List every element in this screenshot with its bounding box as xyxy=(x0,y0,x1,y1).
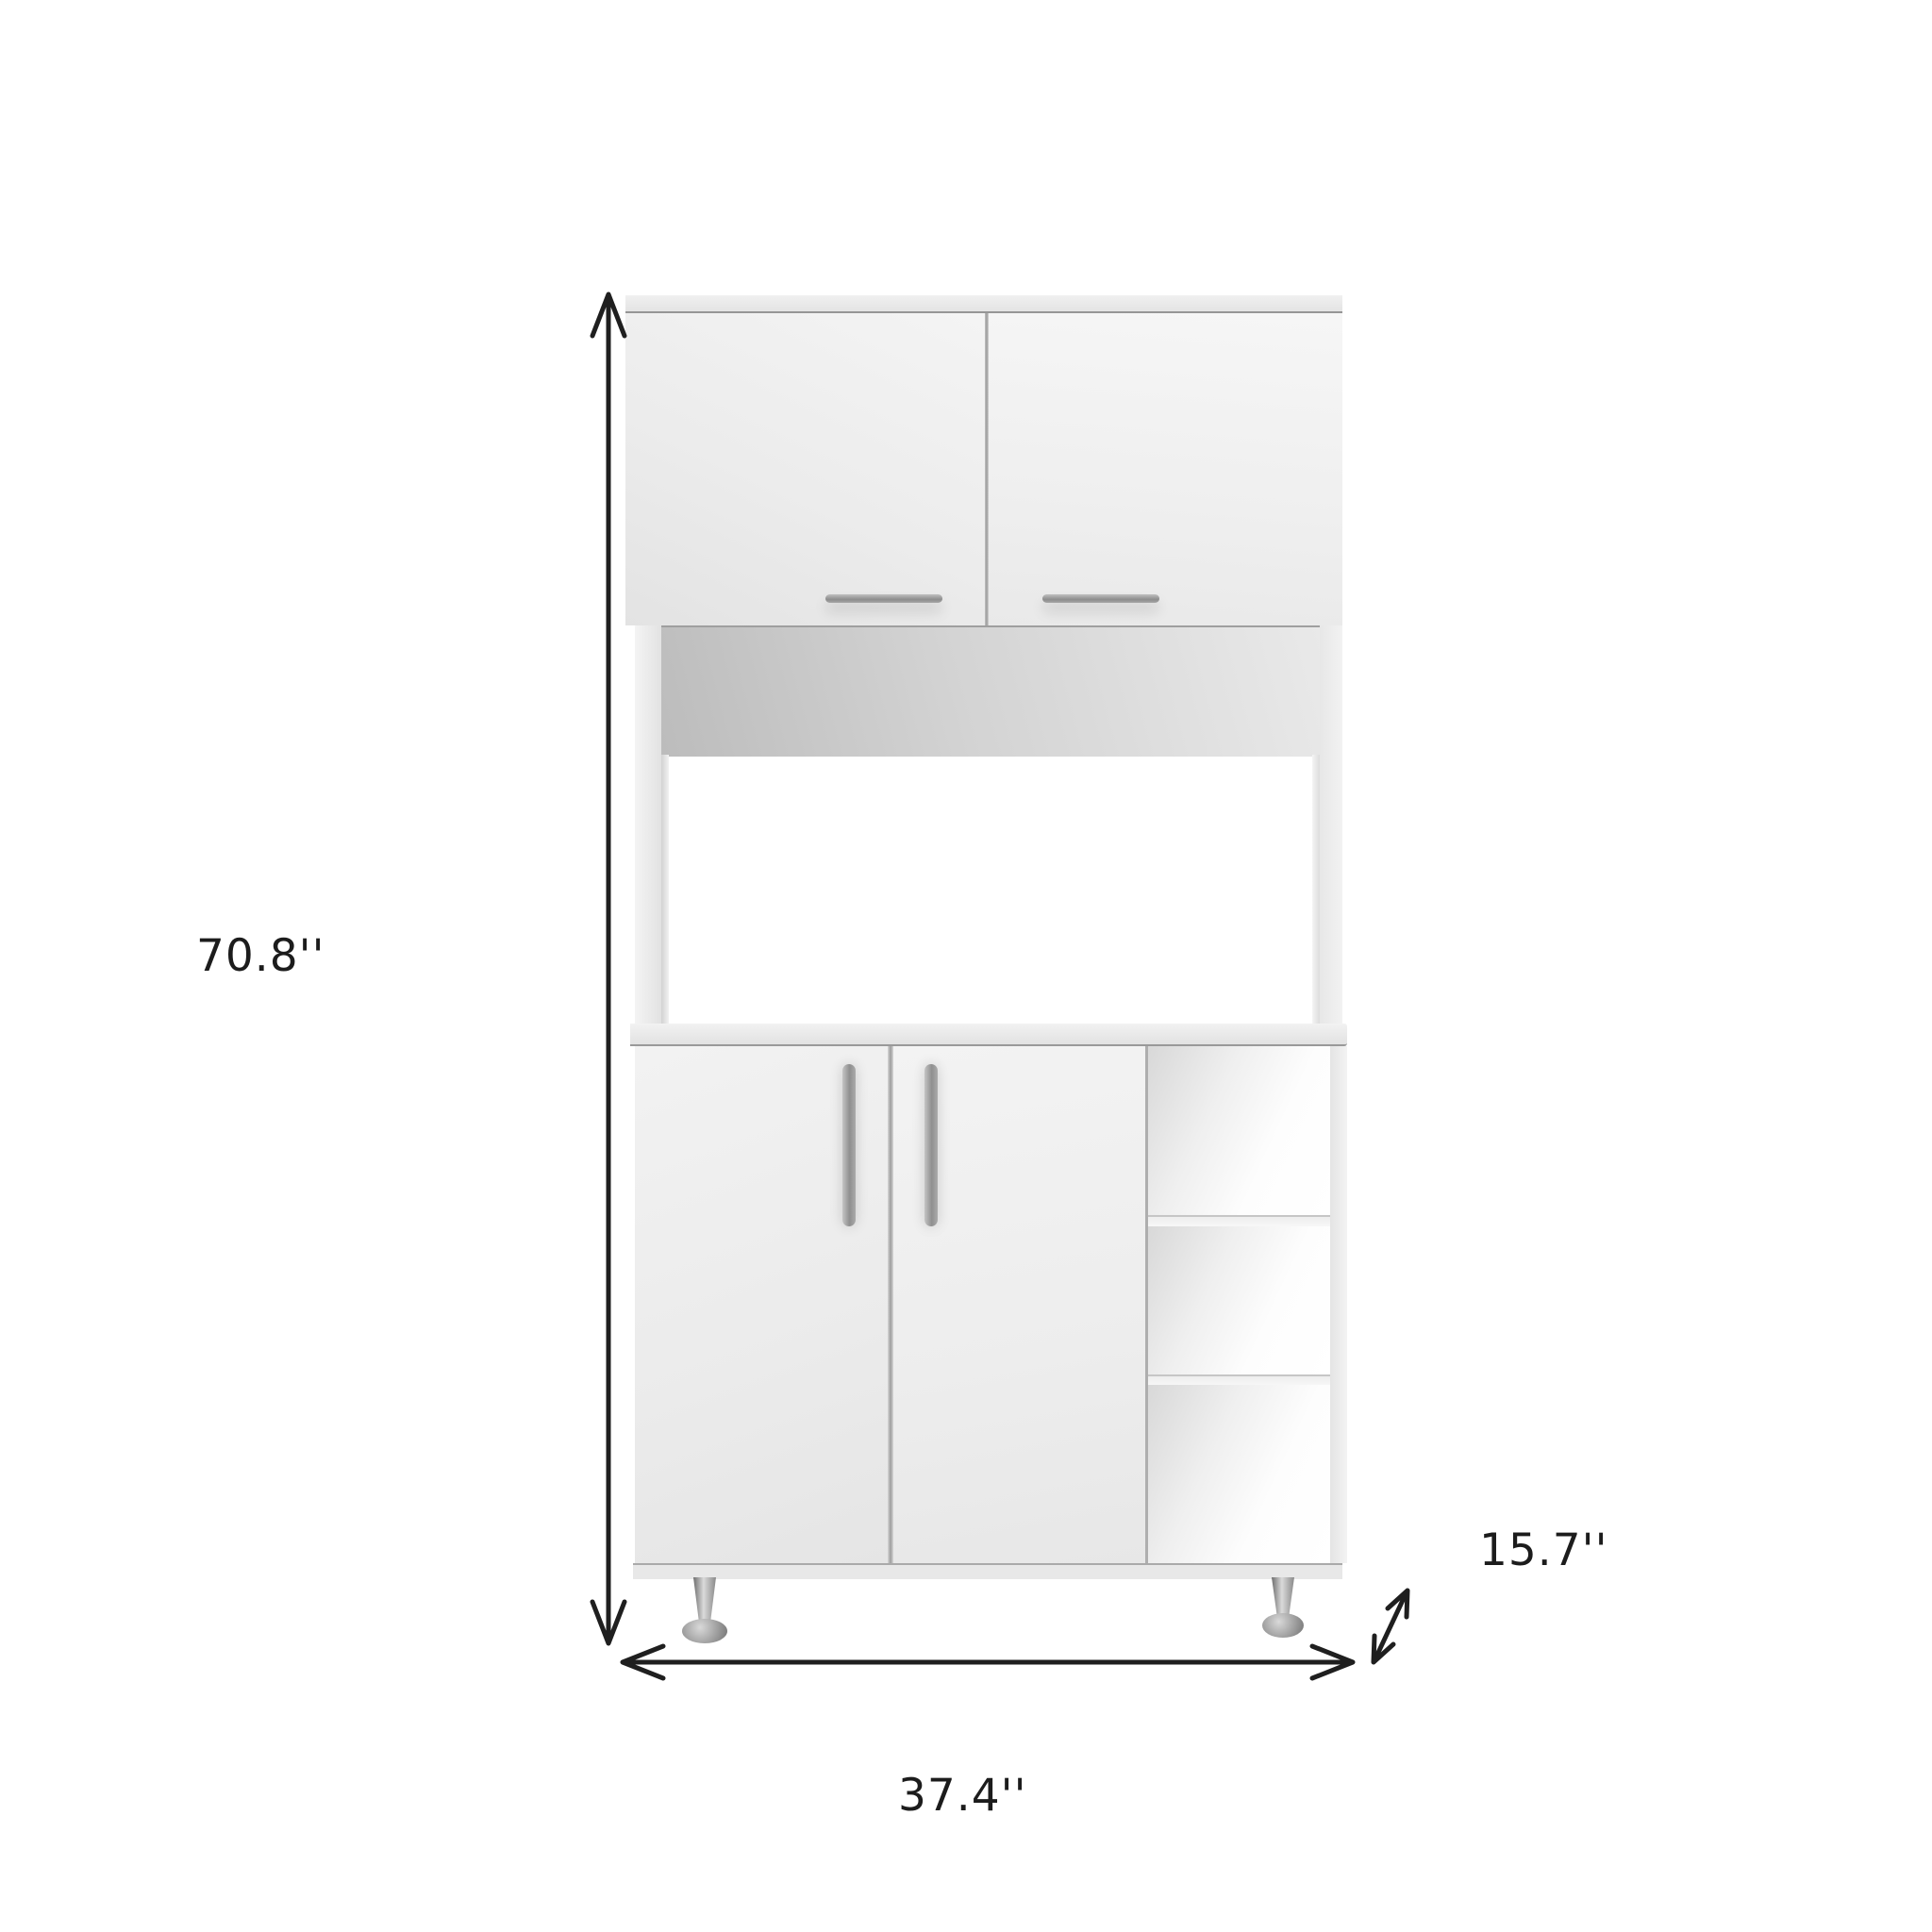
height-label: 70.8'' xyxy=(196,930,325,982)
lower-left-door-handle xyxy=(842,1064,856,1226)
upper-cabinet-doors xyxy=(625,313,1342,625)
upper-left-door-handle xyxy=(825,594,942,603)
open-shelf-top xyxy=(1148,1046,1330,1215)
open-shelf-column xyxy=(1148,1046,1330,1563)
hutch-back-panel xyxy=(661,625,1320,757)
microwave-hutch xyxy=(625,625,1342,1024)
depth-label: 15.7'' xyxy=(1479,1524,1608,1576)
upper-right-door-handle xyxy=(1042,594,1159,603)
lower-right-door xyxy=(893,1046,1145,1563)
depth-dimension-arrow xyxy=(1374,1591,1407,1662)
front-right-leg-foot xyxy=(1262,1613,1304,1638)
upper-left-door xyxy=(625,313,985,625)
height-dimension-arrow xyxy=(592,294,625,1643)
open-shelf-middle xyxy=(1148,1226,1330,1374)
front-left-leg xyxy=(693,1577,716,1624)
product-dimension-diagram: 70.8'' 37.4'' 15.7'' xyxy=(0,0,1932,1932)
lower-cabinet xyxy=(630,1024,1347,1577)
open-shelf-bottom xyxy=(1148,1385,1330,1563)
front-left-leg-foot xyxy=(682,1619,727,1643)
lower-right-side-panel xyxy=(1330,1046,1347,1563)
upper-cabinet xyxy=(625,295,1342,625)
lower-cabinet-body xyxy=(630,1046,1347,1563)
width-dimension-arrow xyxy=(623,1646,1353,1678)
hutch-left-side-panel xyxy=(635,625,661,1024)
width-label: 37.4'' xyxy=(898,1770,1027,1822)
lower-right-door-handle xyxy=(924,1064,938,1226)
upper-cabinet-top-edge xyxy=(625,295,1342,313)
hutch-left-inner-wall xyxy=(661,755,669,1024)
hutch-right-side-panel xyxy=(1320,625,1342,1024)
hutch-right-inner-wall xyxy=(1312,755,1320,1024)
lower-left-door xyxy=(635,1046,888,1563)
lower-cabinet-countertop xyxy=(630,1024,1347,1046)
upper-right-door xyxy=(989,313,1342,625)
base-panel xyxy=(633,1563,1342,1579)
